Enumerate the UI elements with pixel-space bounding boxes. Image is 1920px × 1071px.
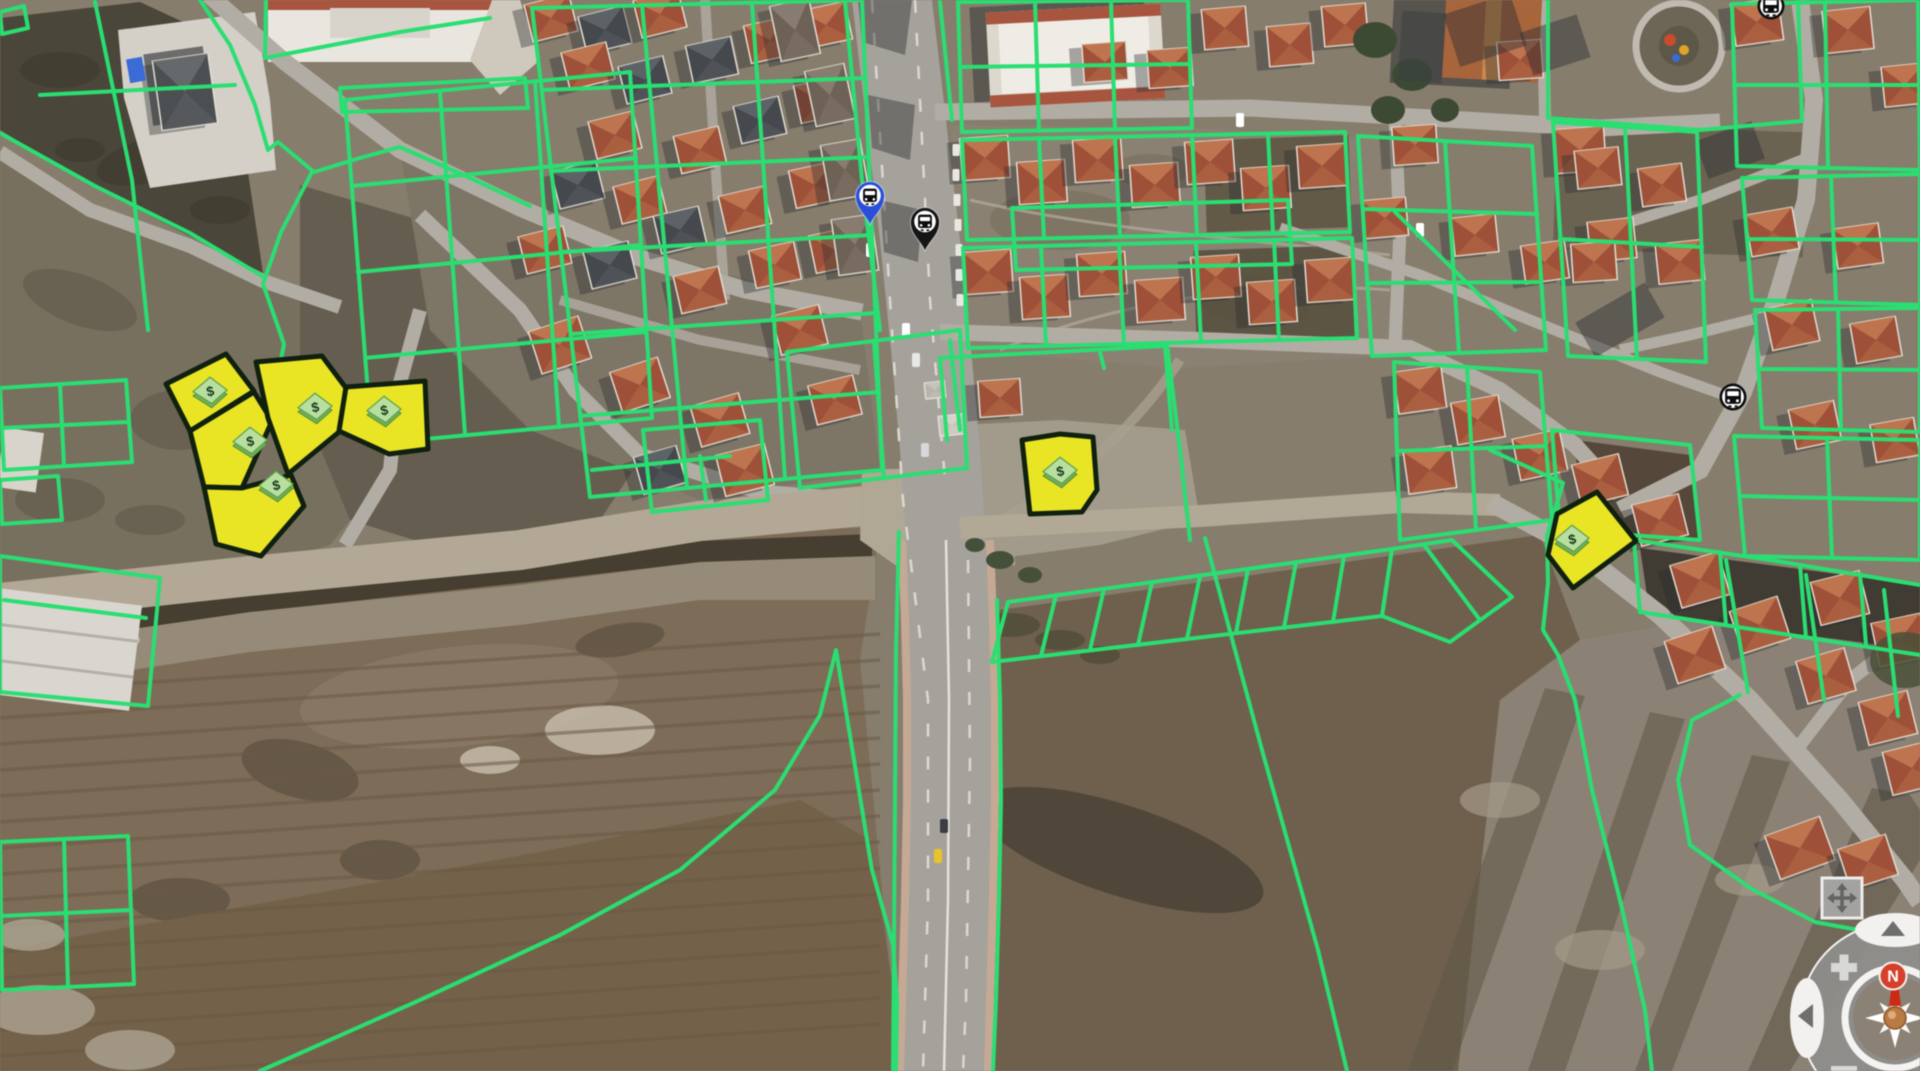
svg-text:N: N (1887, 969, 1899, 986)
